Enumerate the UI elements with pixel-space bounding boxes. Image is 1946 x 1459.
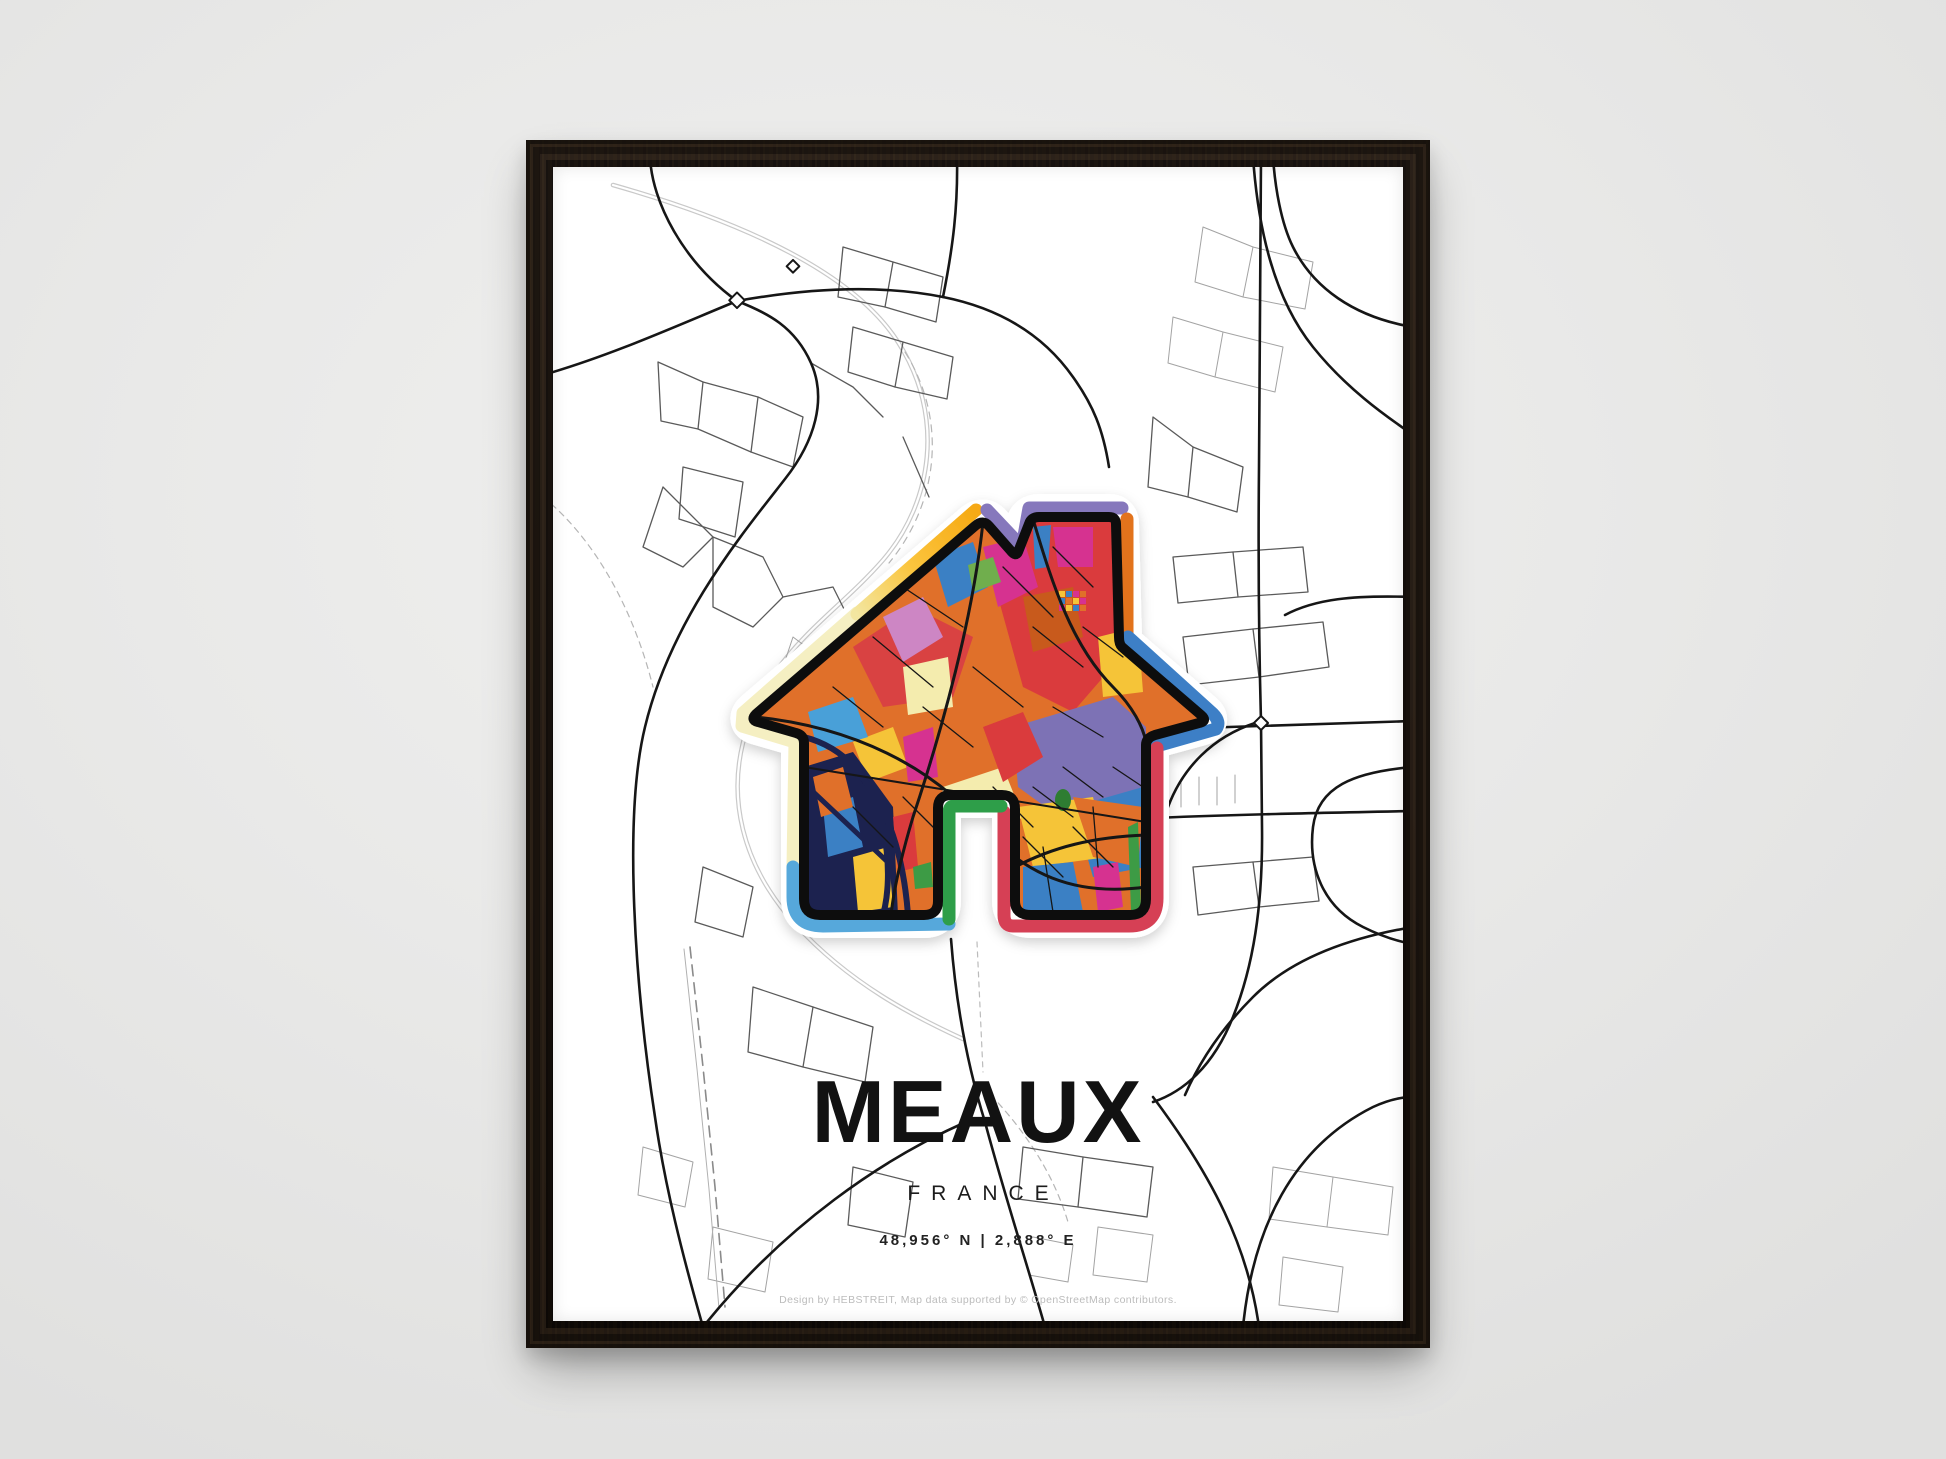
picture-frame: MEAUX FRANCE 48,956° N | 2,888° E Design… (526, 140, 1430, 1348)
poster-paper: MEAUX FRANCE 48,956° N | 2,888° E Design… (553, 167, 1403, 1321)
poster-art (553, 167, 1403, 1321)
house-map-graphic (733, 497, 1233, 937)
wall-background: MEAUX FRANCE 48,956° N | 2,888° E Design… (0, 0, 1946, 1459)
